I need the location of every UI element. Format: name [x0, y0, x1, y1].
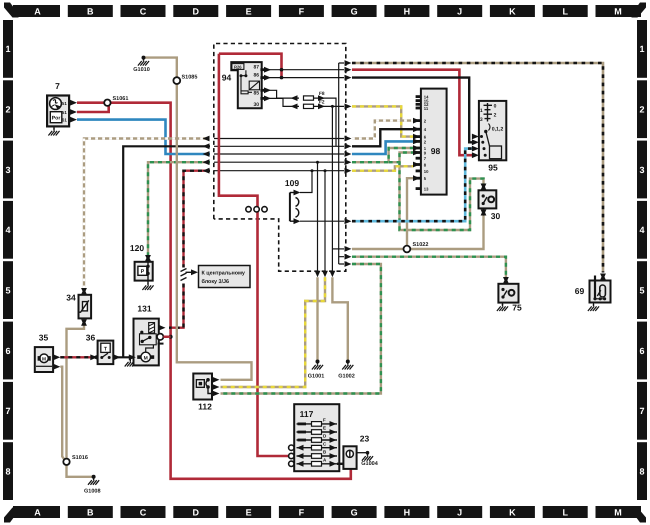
svg-text:K: K: [509, 6, 516, 16]
svg-text:K: K: [509, 507, 516, 517]
svg-text:A: A: [34, 507, 41, 517]
svg-text:H: H: [404, 507, 411, 517]
svg-text:94: 94: [222, 73, 232, 83]
svg-text:36: 36: [86, 333, 96, 343]
svg-text:M: M: [614, 507, 622, 517]
svg-text:F2: F2: [319, 99, 325, 105]
svg-text:13: 13: [424, 187, 429, 192]
svg-text:G1002: G1002: [338, 374, 355, 380]
svg-text:95: 95: [488, 163, 498, 173]
svg-text:S1085: S1085: [182, 75, 198, 81]
svg-text:98: 98: [431, 146, 441, 156]
svg-text:F: F: [299, 507, 305, 517]
svg-text:4: 4: [5, 225, 10, 235]
svg-text:87: 87: [253, 64, 259, 70]
svg-text:51: 51: [62, 101, 67, 106]
svg-text:1: 1: [639, 44, 644, 54]
svg-text:G: G: [351, 6, 358, 16]
svg-text:85: 85: [253, 91, 259, 97]
svg-text:J: J: [457, 507, 462, 517]
svg-text:F8: F8: [319, 91, 325, 97]
svg-text:B: B: [87, 507, 94, 517]
svg-text:4: 4: [639, 225, 644, 235]
svg-text:S1016: S1016: [72, 455, 88, 461]
svg-text:117: 117: [300, 409, 314, 419]
svg-text:3: 3: [480, 117, 483, 123]
svg-text:Por: Por: [52, 116, 61, 122]
svg-text:G1001: G1001: [308, 374, 325, 380]
svg-text:11: 11: [424, 106, 429, 111]
svg-text:P: P: [141, 269, 145, 275]
svg-text:8: 8: [639, 466, 644, 476]
svg-text:5: 5: [639, 285, 644, 295]
svg-text:8: 8: [5, 466, 10, 476]
svg-text:R26: R26: [234, 64, 242, 69]
svg-text:3: 3: [639, 165, 644, 175]
svg-text:0,1,2: 0,1,2: [492, 127, 504, 133]
svg-text:10: 10: [424, 169, 429, 174]
svg-text:120: 120: [130, 243, 144, 253]
svg-text:35: 35: [39, 333, 49, 343]
svg-text:J: J: [457, 6, 462, 16]
svg-text:2: 2: [494, 113, 497, 119]
svg-text:75: 75: [512, 303, 522, 313]
svg-text:6: 6: [639, 346, 644, 356]
svg-text:L: L: [562, 507, 568, 517]
svg-text:51: 51: [62, 110, 67, 115]
svg-text:B: B: [87, 6, 94, 16]
svg-text:F: F: [323, 418, 326, 423]
svg-text:G: G: [351, 507, 358, 517]
svg-text:блоку 3/J6: блоку 3/J6: [202, 279, 230, 285]
svg-text:G1004: G1004: [361, 461, 378, 467]
svg-text:L: L: [562, 6, 568, 16]
svg-text:S1022: S1022: [413, 242, 429, 248]
svg-text:1: 1: [480, 108, 483, 114]
svg-text:34: 34: [66, 293, 76, 303]
svg-text:3: 3: [5, 165, 10, 175]
svg-text:131: 131: [137, 304, 151, 314]
svg-text:69: 69: [575, 286, 585, 296]
svg-text:D: D: [193, 507, 200, 517]
svg-text:E: E: [246, 507, 252, 517]
svg-text:7: 7: [5, 406, 10, 416]
svg-text:M: M: [614, 6, 622, 16]
svg-text:H: H: [404, 6, 411, 16]
svg-text:6: 6: [5, 346, 10, 356]
svg-text:E: E: [246, 6, 252, 16]
svg-text:7: 7: [55, 81, 60, 91]
svg-text:S1061: S1061: [113, 96, 129, 102]
svg-text:2: 2: [5, 105, 10, 115]
svg-text:F: F: [299, 6, 305, 16]
svg-text:К центральному: К центральному: [202, 271, 245, 277]
svg-text:E: E: [323, 426, 326, 431]
svg-text:C: C: [140, 6, 147, 16]
svg-text:23: 23: [360, 434, 370, 444]
svg-text:M: M: [42, 357, 46, 363]
svg-text:30: 30: [491, 211, 501, 221]
svg-text:1: 1: [5, 44, 10, 54]
svg-text:7: 7: [639, 406, 644, 416]
svg-text:5: 5: [5, 285, 10, 295]
svg-text:G1008: G1008: [84, 489, 101, 495]
svg-text:86: 86: [253, 72, 259, 78]
svg-text:61: 61: [62, 118, 67, 123]
svg-text:M: M: [144, 356, 148, 362]
svg-text:30: 30: [253, 102, 259, 108]
svg-text:A: A: [34, 6, 41, 16]
svg-text:C: C: [140, 507, 147, 517]
svg-text:109: 109: [285, 178, 299, 188]
svg-text:0: 0: [494, 104, 497, 110]
svg-text:112: 112: [198, 402, 212, 412]
svg-text:G1010: G1010: [133, 67, 150, 73]
svg-text:D: D: [193, 6, 200, 16]
svg-text:2: 2: [639, 105, 644, 115]
